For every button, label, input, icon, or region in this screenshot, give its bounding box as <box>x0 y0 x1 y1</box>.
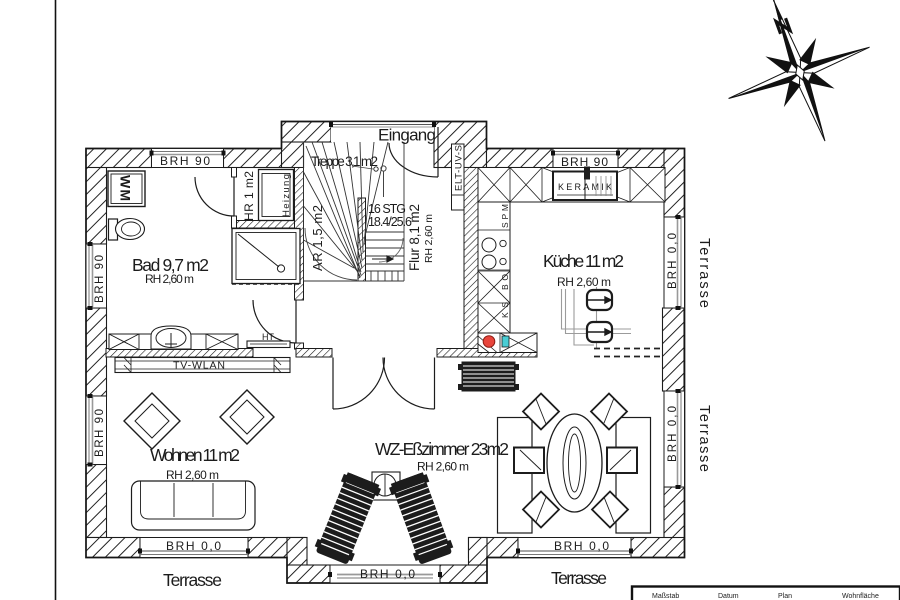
svg-text:Datum: Datum <box>718 593 739 600</box>
svg-text:RH 2,60 m: RH 2,60 m <box>417 460 469 474</box>
svg-text:Plan: Plan <box>778 593 792 600</box>
svg-text:Terrasse: Terrasse <box>163 570 222 590</box>
svg-text:Wohnen 11 m2: Wohnen 11 m2 <box>150 445 240 465</box>
svg-text:Küche 11 m2: Küche 11 m2 <box>543 251 624 271</box>
svg-text:Wohnfläche: Wohnfläche <box>842 593 879 600</box>
svg-text:RH 2,60 m: RH 2,60 m <box>557 275 611 289</box>
svg-text:BRH 90: BRH 90 <box>160 154 210 168</box>
svg-text:BRH 90: BRH 90 <box>94 409 106 457</box>
svg-text:RH 2,60 m: RH 2,60 m <box>166 468 219 482</box>
svg-text:AR 1,5 m2: AR 1,5 m2 <box>310 205 325 271</box>
svg-text:Flur 8,1 m2: Flur 8,1 m2 <box>407 204 422 271</box>
svg-text:HR 1 m2: HR 1 m2 <box>242 171 256 221</box>
svg-text:Eingang: Eingang <box>378 126 436 145</box>
svg-text:RH 2,60 m: RH 2,60 m <box>145 272 194 286</box>
svg-text:WZ-Eßzimmer 23m2: WZ-Eßzimmer 23m2 <box>375 439 509 459</box>
svg-text:16 STG: 16 STG <box>368 202 406 216</box>
svg-text:SPM: SPM <box>500 204 510 228</box>
svg-text:18.4/25.6: 18.4/25.6 <box>368 215 412 229</box>
svg-text:RH 2,60 m: RH 2,60 m <box>423 214 435 263</box>
svg-text:BRH 90: BRH 90 <box>94 255 106 303</box>
svg-text:WM: WM <box>118 175 134 201</box>
svg-text:Treppe 3,1 m2: Treppe 3,1 m2 <box>311 154 378 169</box>
svg-text:Terrasse: Terrasse <box>696 238 712 308</box>
svg-text:TV-WLAN: TV-WLAN <box>173 360 225 372</box>
svg-text:Terrasse: Terrasse <box>696 405 712 472</box>
svg-text:HT: HT <box>262 332 274 342</box>
svg-text:Terrasse: Terrasse <box>551 568 607 588</box>
svg-text:ELT-UV-S: ELT-UV-S <box>454 145 465 191</box>
svg-text:Maßstab: Maßstab <box>652 593 679 600</box>
